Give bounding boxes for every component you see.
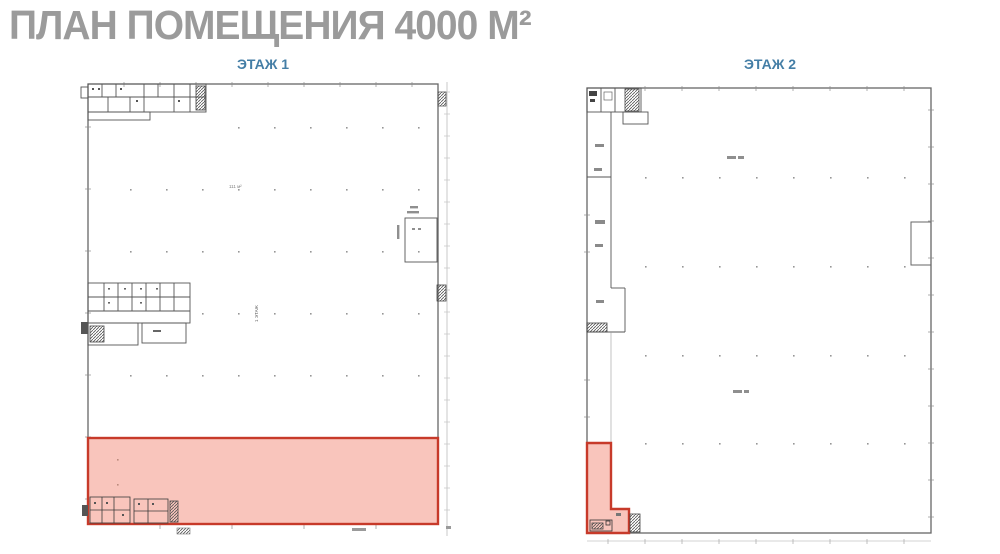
- floor2-heading: ЭТАЖ 2: [575, 56, 965, 72]
- floor1-dimension-marks: [177, 526, 451, 534]
- floor2-stairwell-middle: [587, 323, 607, 332]
- floor1-stairwell-right-middle: [437, 285, 446, 301]
- floor2-stairwell-top: [625, 89, 639, 111]
- floor1-stairwell-middle: [90, 326, 104, 342]
- floor1-heading: ЭТАЖ 1: [78, 56, 448, 72]
- floor2-plan: [575, 80, 945, 550]
- floor1-stairwell-top: [196, 86, 205, 110]
- page-title: ПЛАН ПОМЕЩЕНИЯ 4000 М²: [9, 2, 531, 49]
- floor1-area-label: 111 м²: [229, 184, 242, 189]
- floor1-axis-label: 1 ЭТАЖ: [254, 304, 259, 322]
- floor2-outline: [587, 88, 931, 533]
- floor2-stairwell-bottom: [630, 514, 640, 532]
- floor1-stairwell-right-top: [438, 92, 446, 106]
- floor1-plan: 111 м² 1 ЭТАЖ: [78, 78, 462, 542]
